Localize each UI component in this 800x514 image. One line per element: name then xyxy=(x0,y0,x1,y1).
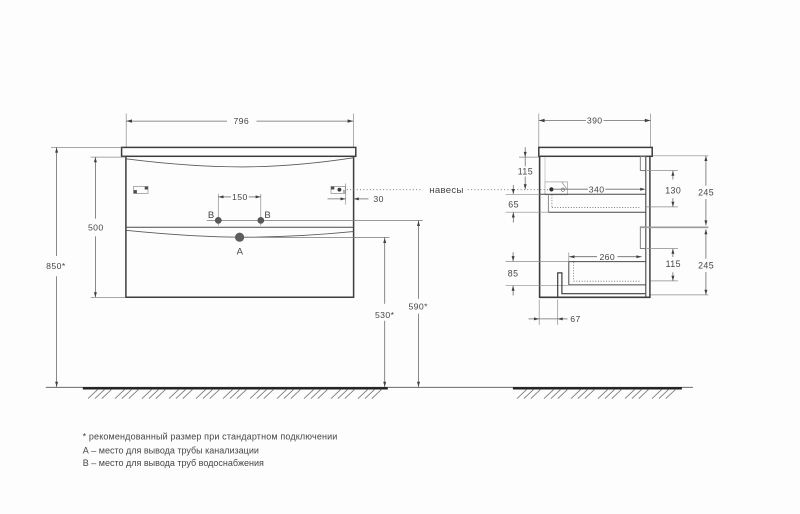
svg-text:85: 85 xyxy=(508,269,519,279)
svg-text:390: 390 xyxy=(587,116,603,126)
svg-text:* рекомендованный размер при с: * рекомендованный размер при стандартном… xyxy=(83,432,338,442)
svg-text:В – место для вывода труб водо: В – место для вывода труб водоснабжения xyxy=(83,458,264,468)
svg-text:260: 260 xyxy=(599,252,615,262)
svg-text:A: A xyxy=(237,246,244,257)
svg-text:590*: 590* xyxy=(408,301,428,311)
svg-text:B: B xyxy=(264,210,270,221)
svg-text:500: 500 xyxy=(88,223,104,233)
svg-text:навесы: навесы xyxy=(429,185,463,196)
svg-text:67: 67 xyxy=(570,314,580,324)
svg-text:796: 796 xyxy=(233,116,249,126)
svg-text:150: 150 xyxy=(232,192,248,202)
svg-text:340: 340 xyxy=(589,184,605,194)
svg-text:30: 30 xyxy=(373,194,383,204)
svg-text:115: 115 xyxy=(518,166,533,176)
svg-text:850*: 850* xyxy=(46,261,66,271)
svg-text:130: 130 xyxy=(665,186,681,196)
svg-text:115: 115 xyxy=(666,259,681,269)
svg-text:245: 245 xyxy=(698,261,714,271)
svg-text:B: B xyxy=(208,210,214,221)
svg-text:А – место для вывода трубы кан: А – место для вывода трубы канализации xyxy=(83,446,259,456)
svg-text:245: 245 xyxy=(698,188,714,198)
svg-text:530*: 530* xyxy=(375,310,395,320)
svg-text:65: 65 xyxy=(508,199,519,209)
